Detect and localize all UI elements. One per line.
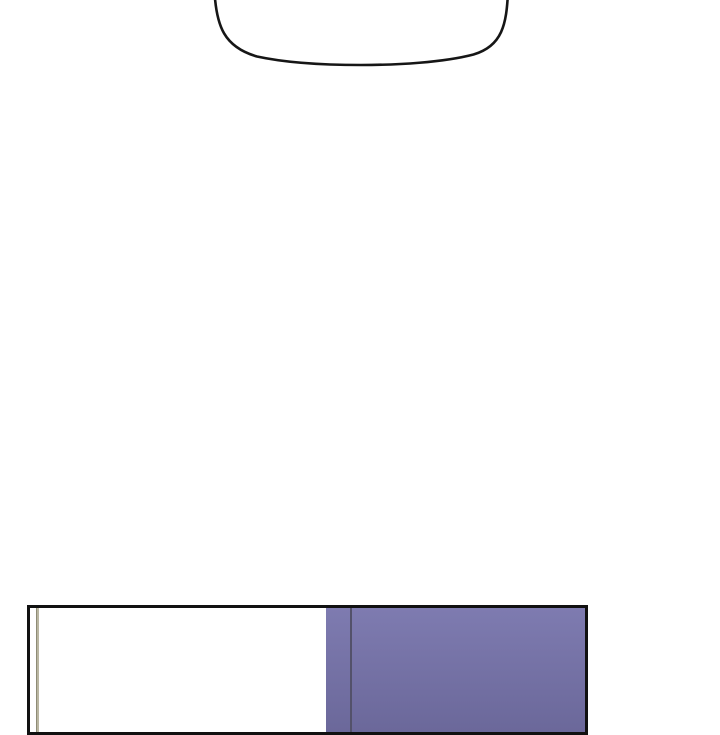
- purple-wall-area: [326, 608, 585, 732]
- speech-bubble: [0, 0, 720, 80]
- wall-seam-line: [350, 608, 352, 732]
- comic-panel: [27, 605, 588, 735]
- doorframe-accent-line: [36, 608, 39, 732]
- comic-panel-interior: [30, 608, 585, 732]
- speech-bubble-outline: [215, 0, 509, 65]
- comic-page-background: [0, 0, 720, 700]
